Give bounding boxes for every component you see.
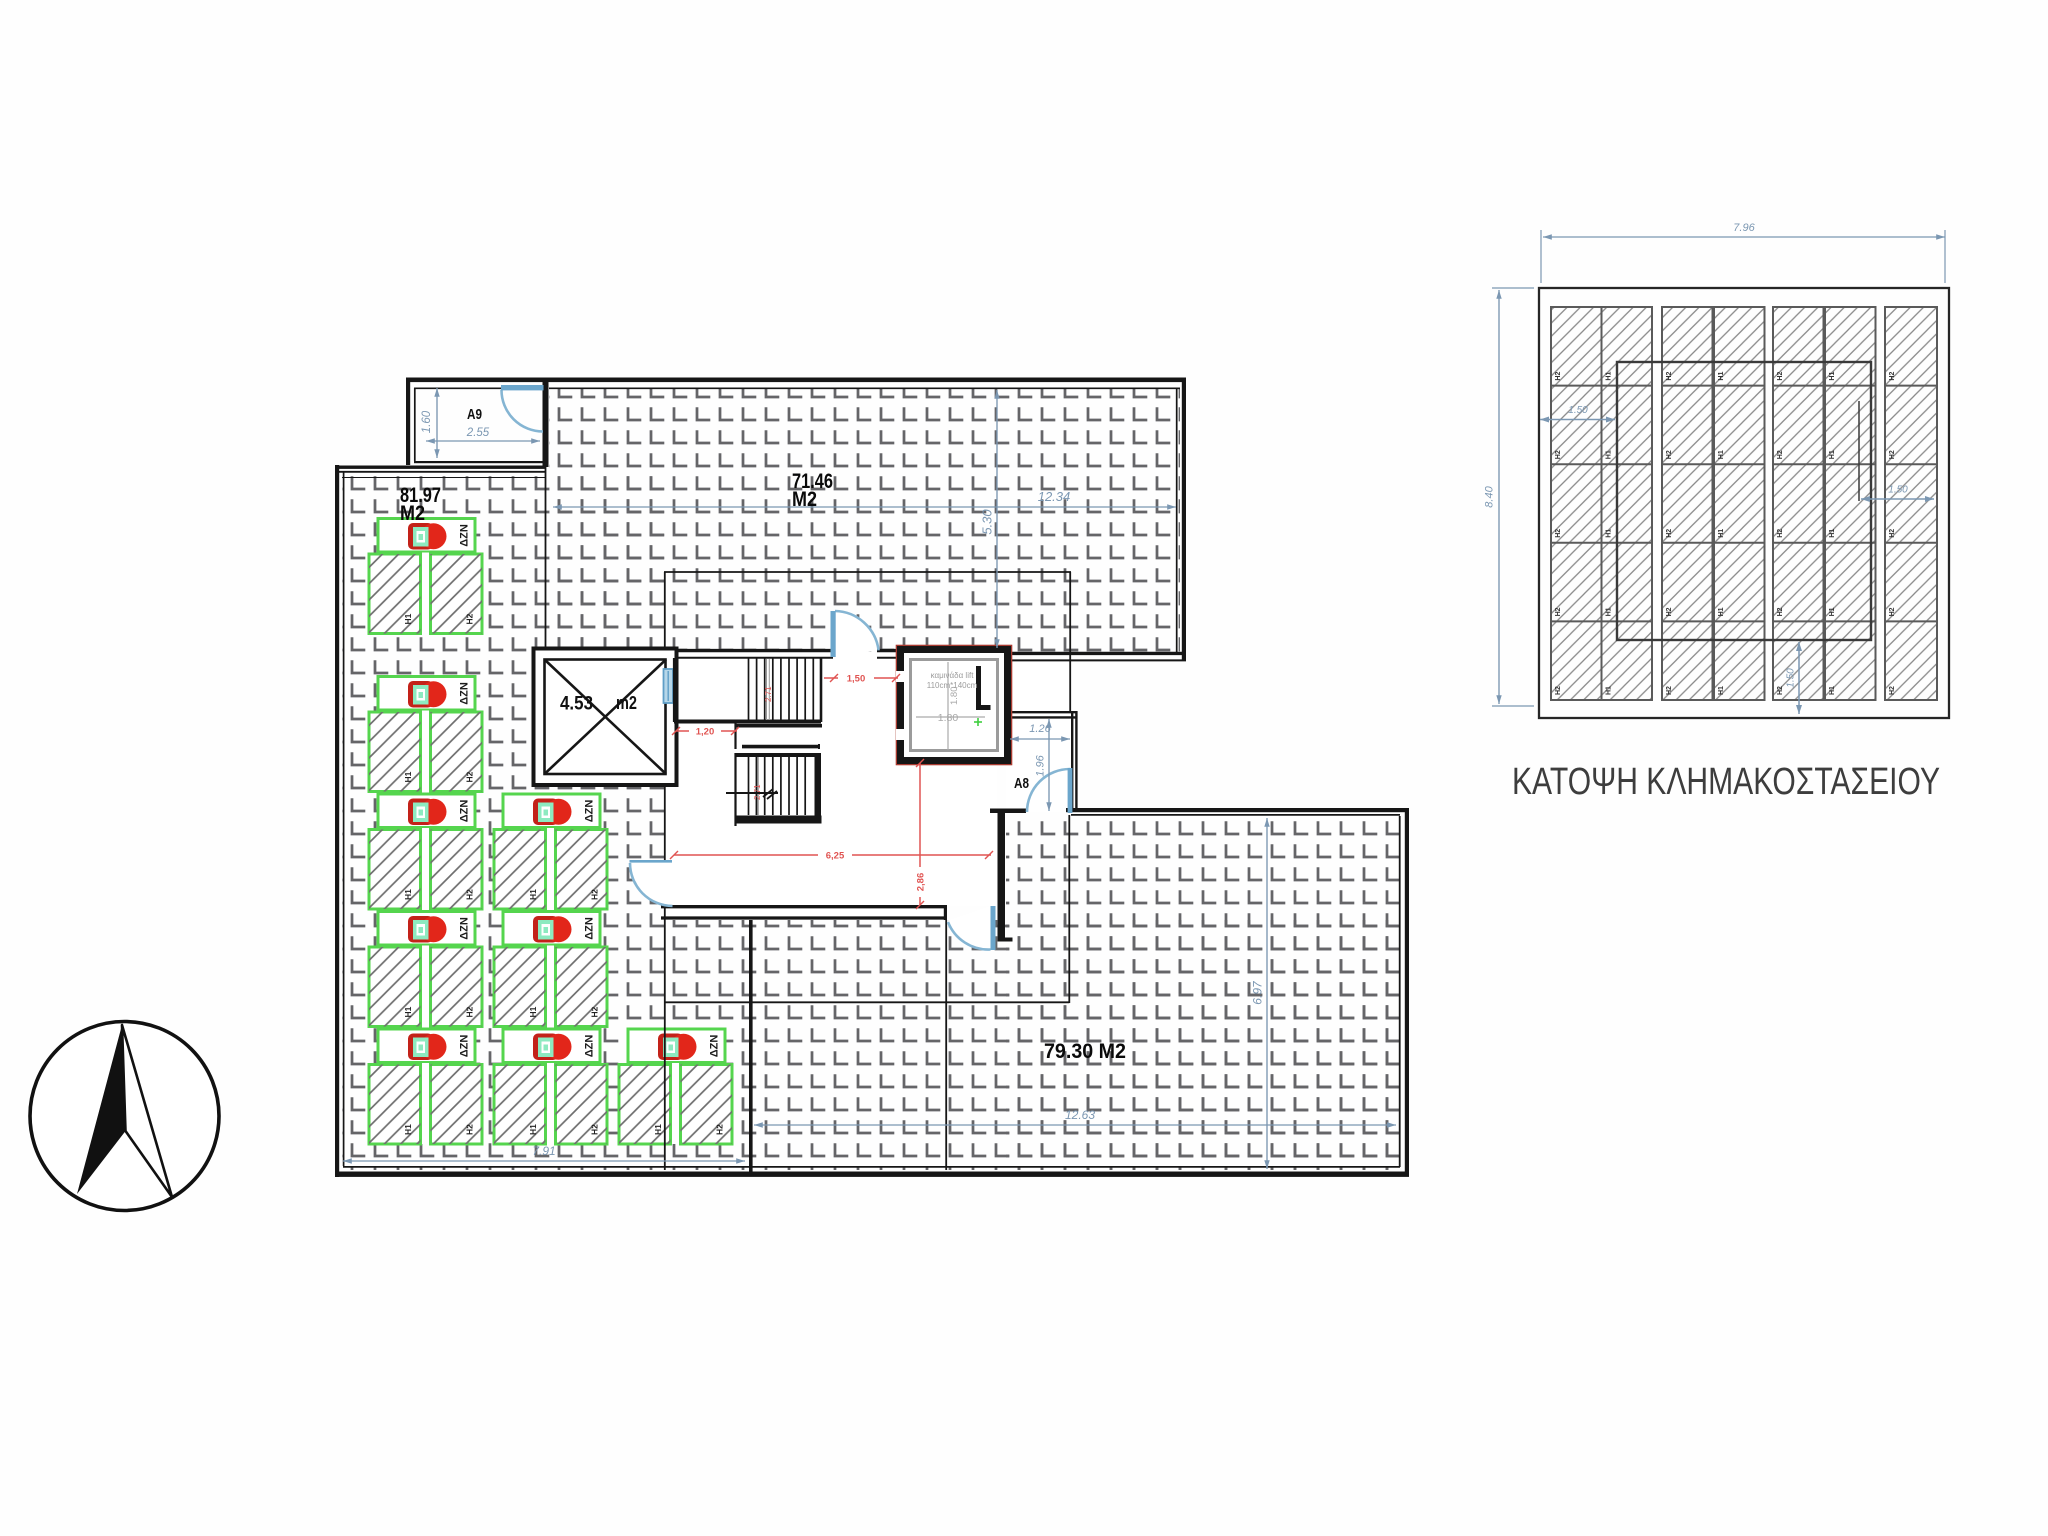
svg-text:1.80: 1.80 (949, 687, 960, 706)
svg-text:1.50: 1.50 (1786, 668, 1797, 688)
svg-text:Η2: Η2 (1889, 686, 1896, 695)
svg-text:Η2: Η2 (1777, 372, 1784, 381)
svg-text:Η1: Η1 (1718, 450, 1725, 459)
svg-text:Η2: Η2 (1666, 372, 1673, 381)
svg-text:Η1: Η1 (1829, 372, 1836, 381)
svg-text:Η1: Η1 (1606, 607, 1613, 616)
svg-text:Η1: Η1 (1829, 686, 1836, 695)
svg-text:Η1: Η1 (1718, 607, 1725, 616)
svg-text:M2: M2 (400, 502, 425, 525)
svg-text:Η2: Η2 (1666, 529, 1673, 538)
svg-text:Η1: Η1 (1606, 450, 1613, 459)
svg-text:Η1: Η1 (1829, 529, 1836, 538)
svg-text:ΚΑΤΟΨΗ ΚΛΗΜΑΚΟΣΤΑΣΕΙΟΥ: ΚΑΤΟΨΗ ΚΛΗΜΑΚΟΣΤΑΣΕΙΟΥ (1512, 761, 1940, 803)
svg-text:Η2: Η2 (1555, 450, 1562, 459)
svg-text:2.71: 2.71 (753, 784, 762, 800)
svg-text:2.71: 2.71 (764, 686, 773, 702)
svg-text:Η2: Η2 (1889, 372, 1896, 381)
svg-text:79.30 M2: 79.30 M2 (1044, 1040, 1126, 1063)
svg-text:1,50: 1,50 (847, 674, 866, 685)
svg-text:M2: M2 (792, 488, 817, 511)
svg-text:Η2: Η2 (1666, 450, 1673, 459)
svg-text:4.53: 4.53 (560, 694, 593, 715)
svg-text:1,20: 1,20 (696, 727, 715, 738)
svg-text:Η2: Η2 (1777, 686, 1784, 695)
svg-text:A9: A9 (467, 406, 482, 423)
svg-text:1.80: 1.80 (938, 712, 959, 724)
svg-text:Η2: Η2 (1555, 372, 1562, 381)
svg-text:Η1: Η1 (1718, 686, 1725, 695)
svg-text:Η2: Η2 (1889, 529, 1896, 538)
svg-text:A8: A8 (1014, 775, 1029, 792)
svg-text:Η2: Η2 (1666, 607, 1673, 616)
svg-text:12.34: 12.34 (1038, 489, 1071, 504)
svg-text:Η1: Η1 (1606, 372, 1613, 381)
svg-text:2,86: 2,86 (916, 873, 927, 892)
svg-text:1.50: 1.50 (1568, 405, 1588, 416)
svg-text:Η1: Η1 (1606, 529, 1613, 538)
svg-text:1.50: 1.50 (1888, 485, 1908, 496)
svg-text:m2: m2 (616, 693, 637, 713)
svg-text:Η2: Η2 (1555, 686, 1562, 695)
svg-text:Η2: Η2 (1777, 529, 1784, 538)
svg-text:Η2: Η2 (1777, 607, 1784, 616)
svg-text:7.96: 7.96 (1733, 222, 1755, 234)
svg-text:6,25: 6,25 (826, 851, 845, 862)
svg-text:Η1: Η1 (1829, 607, 1836, 616)
svg-text:2.55: 2.55 (466, 427, 490, 439)
svg-text:8.40: 8.40 (1484, 485, 1496, 507)
svg-text:Η1: Η1 (1606, 686, 1613, 695)
svg-text:Η2: Η2 (1666, 686, 1673, 695)
svg-text:Η2: Η2 (1889, 607, 1896, 616)
svg-text:1.60: 1.60 (421, 410, 433, 433)
svg-text:Η1: Η1 (1718, 529, 1725, 538)
svg-text:Η1: Η1 (1829, 450, 1836, 459)
svg-text:1.96: 1.96 (1035, 754, 1047, 776)
svg-text:Η2: Η2 (1777, 450, 1784, 459)
svg-text:12.63: 12.63 (1065, 1108, 1095, 1122)
svg-text:Η2: Η2 (1889, 450, 1896, 459)
svg-text:6.97: 6.97 (1251, 980, 1265, 1005)
svg-text:Η2: Η2 (1555, 607, 1562, 616)
svg-text:5.30: 5.30 (980, 509, 995, 535)
svg-text:Η1: Η1 (1718, 372, 1725, 381)
svg-text:καμινάδα lift: καμινάδα lift (931, 671, 975, 680)
svg-text:7.91: 7.91 (532, 1144, 555, 1158)
svg-text:Η2: Η2 (1555, 529, 1562, 538)
